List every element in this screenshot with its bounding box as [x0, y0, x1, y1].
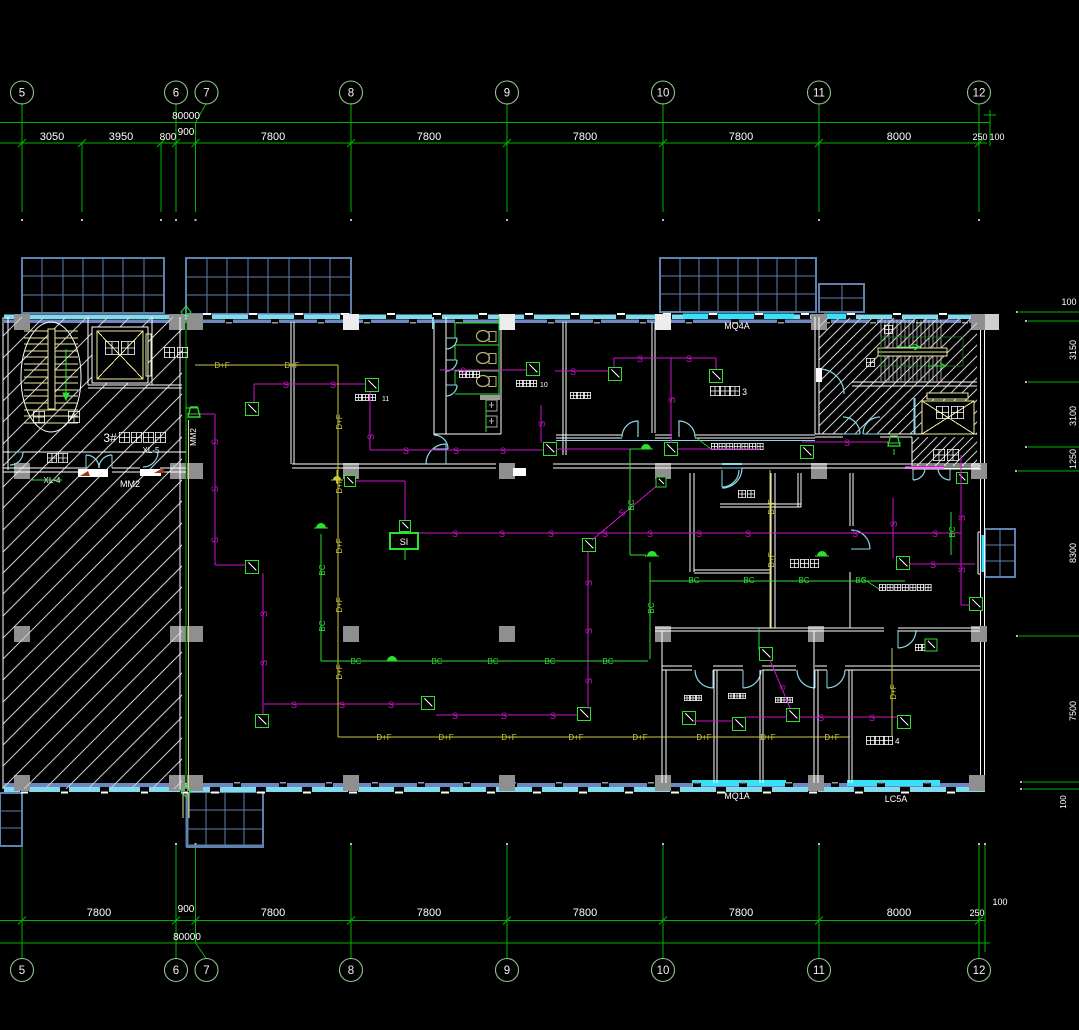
svg-text:6: 6	[173, 88, 179, 100]
svg-text:S: S	[844, 438, 850, 448]
svg-text:D+F: D+F	[284, 361, 299, 370]
svg-text:S: S	[259, 611, 269, 617]
svg-text:3050: 3050	[40, 131, 64, 143]
svg-text:80000: 80000	[173, 932, 201, 943]
svg-text:BC: BC	[544, 657, 555, 666]
svg-text:900: 900	[178, 127, 195, 138]
svg-text:S: S	[453, 446, 459, 456]
svg-text:D+F: D+F	[696, 733, 711, 742]
svg-text:D+F: D+F	[824, 733, 839, 742]
svg-text:8: 8	[348, 965, 354, 977]
svg-text:S: S	[550, 711, 556, 721]
svg-text:S: S	[957, 515, 967, 521]
svg-text:S: S	[366, 434, 376, 440]
svg-text:BC: BC	[647, 602, 656, 613]
svg-text:S: S	[330, 380, 336, 390]
svg-text:D+F: D+F	[767, 552, 776, 567]
svg-text:S: S	[686, 354, 692, 364]
svg-text:LC5A: LC5A	[885, 794, 908, 804]
svg-text:900: 900	[178, 904, 195, 915]
svg-text:BC: BC	[855, 576, 866, 585]
svg-text:S: S	[210, 439, 220, 445]
svg-text:S: S	[889, 521, 899, 527]
svg-text:10: 10	[657, 88, 670, 100]
svg-text:11: 11	[382, 396, 389, 403]
svg-text:MQ1A: MQ1A	[724, 791, 750, 801]
svg-text:BC: BC	[431, 657, 442, 666]
svg-text:D+F: D+F	[335, 538, 344, 553]
svg-text:8300: 8300	[1068, 543, 1078, 563]
svg-text:8000: 8000	[887, 907, 911, 919]
svg-text:D+F: D+F	[760, 733, 775, 742]
svg-text:7800: 7800	[417, 131, 441, 143]
svg-text:10: 10	[540, 382, 548, 389]
svg-text:S: S	[852, 529, 858, 539]
svg-text:S: S	[932, 529, 938, 539]
svg-text:BC: BC	[350, 657, 361, 666]
svg-text:S: S	[500, 446, 506, 456]
svg-text:D+F: D+F	[632, 733, 647, 742]
svg-text:D+F: D+F	[438, 733, 453, 742]
svg-text:BC: BC	[798, 576, 809, 585]
svg-text:MQ4A: MQ4A	[724, 321, 750, 331]
svg-text:1250: 1250	[1068, 449, 1078, 469]
svg-text:7: 7	[203, 965, 209, 977]
svg-text:S: S	[957, 567, 967, 573]
svg-text:S: S	[602, 529, 608, 539]
svg-text:D+F: D+F	[376, 733, 391, 742]
svg-text:XL-4: XL-4	[44, 476, 61, 485]
svg-text:S: S	[584, 580, 594, 586]
svg-text:8: 8	[348, 88, 354, 100]
svg-text:S: S	[667, 397, 677, 403]
svg-text:7800: 7800	[573, 131, 597, 143]
svg-text:12: 12	[973, 88, 986, 100]
svg-text:BC: BC	[688, 576, 699, 585]
svg-text:XL-5: XL-5	[143, 446, 160, 455]
svg-text:S: S	[460, 366, 466, 376]
svg-text:10: 10	[657, 965, 670, 977]
svg-text:S: S	[501, 711, 507, 721]
svg-text:S: S	[452, 529, 458, 539]
svg-text:D+F: D+F	[501, 733, 516, 742]
svg-text:BC: BC	[487, 657, 498, 666]
svg-text:3150: 3150	[1068, 340, 1078, 360]
svg-text:11: 11	[813, 88, 825, 100]
svg-text:S: S	[930, 560, 936, 570]
svg-text:100: 100	[1059, 795, 1068, 809]
svg-text:5: 5	[19, 965, 25, 977]
svg-text:S: S	[537, 421, 547, 427]
svg-text:6: 6	[173, 965, 179, 977]
svg-text:S: S	[647, 529, 653, 539]
svg-text:S: S	[259, 660, 269, 666]
svg-text:S: S	[818, 713, 824, 723]
svg-text:BC: BC	[743, 576, 754, 585]
svg-text:8000: 8000	[887, 131, 911, 143]
svg-text:BC: BC	[627, 499, 636, 510]
svg-text:9: 9	[504, 88, 510, 100]
svg-text:7800: 7800	[573, 907, 597, 919]
svg-text:5: 5	[19, 88, 25, 100]
svg-text:BC: BC	[318, 564, 327, 575]
svg-text:4: 4	[895, 737, 900, 746]
svg-text:7500: 7500	[1068, 701, 1078, 721]
svg-text:S: S	[210, 486, 220, 492]
svg-text:250: 250	[969, 908, 984, 918]
svg-text:SI: SI	[400, 537, 409, 547]
svg-text:MM2: MM2	[120, 479, 140, 489]
svg-text:D+F: D+F	[568, 733, 583, 742]
svg-text:3: 3	[742, 387, 747, 397]
svg-text:7800: 7800	[261, 907, 285, 919]
svg-text:S: S	[452, 711, 458, 721]
svg-text:S: S	[570, 367, 576, 377]
svg-text:S: S	[637, 354, 643, 364]
svg-text:S: S	[499, 529, 505, 539]
svg-text:BC: BC	[602, 657, 613, 666]
svg-text:D+F: D+F	[335, 478, 344, 493]
svg-text:D+F: D+F	[335, 664, 344, 679]
svg-text:9: 9	[504, 965, 510, 977]
svg-text:100: 100	[1061, 297, 1076, 307]
svg-text:S: S	[548, 529, 554, 539]
svg-text:11: 11	[813, 965, 825, 977]
svg-text:100: 100	[989, 132, 1004, 142]
svg-text:S: S	[388, 700, 394, 710]
svg-text:S: S	[339, 700, 345, 710]
svg-text:12: 12	[973, 965, 986, 977]
svg-text:7: 7	[203, 88, 209, 100]
svg-text:80000: 80000	[172, 111, 200, 122]
svg-text:S: S	[283, 380, 289, 390]
svg-text:100: 100	[992, 897, 1007, 907]
svg-text:BC: BC	[948, 526, 957, 537]
svg-text:7800: 7800	[417, 907, 441, 919]
svg-text:S: S	[869, 713, 875, 723]
svg-text:S: S	[584, 628, 594, 634]
svg-text:S: S	[696, 529, 702, 539]
svg-text:3100: 3100	[1068, 406, 1078, 426]
svg-text:7800: 7800	[261, 131, 285, 143]
svg-text:S: S	[210, 537, 220, 543]
svg-text:7800: 7800	[87, 907, 111, 919]
svg-text:D+F: D+F	[889, 684, 898, 699]
svg-text:7800: 7800	[729, 907, 753, 919]
svg-text:800: 800	[160, 132, 177, 143]
svg-text:D+F: D+F	[335, 597, 344, 612]
svg-text:S: S	[403, 446, 409, 456]
svg-text:S: S	[745, 529, 751, 539]
svg-text:3950: 3950	[109, 131, 133, 143]
svg-text:S: S	[291, 700, 297, 710]
svg-text:D+F: D+F	[214, 361, 229, 370]
svg-text:MM2: MM2	[189, 428, 198, 446]
svg-text:7800: 7800	[729, 131, 753, 143]
svg-text:250: 250	[972, 132, 987, 142]
svg-text:D+F: D+F	[767, 499, 776, 514]
svg-text:D+F: D+F	[335, 414, 344, 429]
svg-text:3#: 3#	[103, 431, 117, 445]
svg-text:S: S	[584, 678, 594, 684]
svg-text:BC: BC	[318, 620, 327, 631]
